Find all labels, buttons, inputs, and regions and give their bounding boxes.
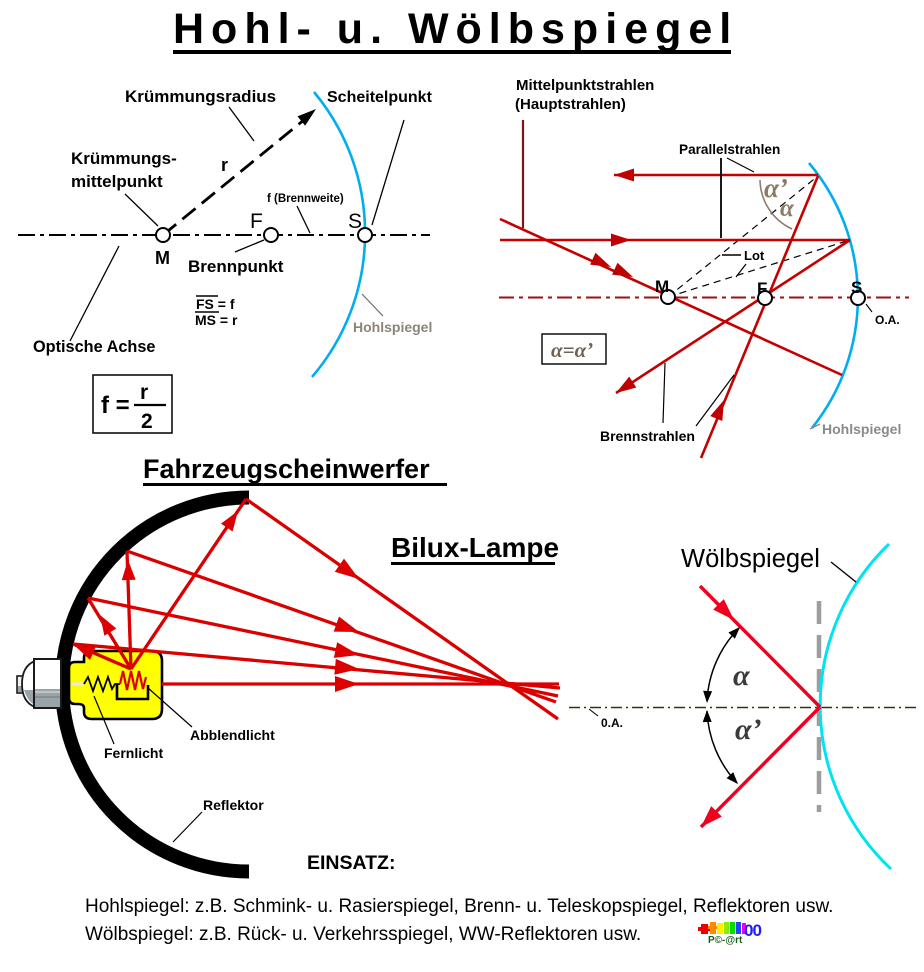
svg-text:M: M xyxy=(655,277,669,296)
svg-text:α=α’: α=α’ xyxy=(551,338,593,362)
svg-text:Wölbspiegel: Wölbspiegel xyxy=(681,545,820,573)
svg-text:Reflektor: Reflektor xyxy=(203,797,264,813)
svg-text:Brennpunkt: Brennpunkt xyxy=(188,257,284,276)
svg-text:S: S xyxy=(348,210,362,233)
svg-text:Abblendlicht: Abblendlicht xyxy=(190,727,275,743)
svg-text:Bilux-Lampe: Bilux-Lampe xyxy=(391,532,559,563)
svg-text:S: S xyxy=(851,278,862,297)
svg-text:Hohlspiegel: Hohlspiegel xyxy=(353,319,432,335)
svg-text:2: 2 xyxy=(141,410,153,433)
svg-text:Krümmungs-: Krümmungs- xyxy=(71,149,177,168)
svg-text:Lot: Lot xyxy=(744,248,765,263)
svg-text:(Hauptstrahlen): (Hauptstrahlen) xyxy=(515,96,626,113)
svg-text:Mittelpunktstrahlen: Mittelpunktstrahlen xyxy=(516,77,654,94)
svg-text:FS = f: FS = f xyxy=(196,296,235,312)
svg-text:Wölbspiegel: z.B. Rück- u. Ver: Wölbspiegel: z.B. Rück- u. Verkehrsspieg… xyxy=(85,924,641,945)
svg-text:Fahrzeugscheinwerfer: Fahrzeugscheinwerfer xyxy=(143,454,430,484)
svg-text:Parallelstrahlen: Parallelstrahlen xyxy=(679,142,780,157)
svg-text:EINSATZ:: EINSATZ: xyxy=(307,852,395,874)
svg-text:mittelpunkt: mittelpunkt xyxy=(71,172,163,191)
svg-text:Krümmungsradius: Krümmungsradius xyxy=(125,87,276,106)
svg-text:F: F xyxy=(250,210,263,233)
svg-text:f =: f = xyxy=(101,392,130,419)
svg-text:r: r xyxy=(221,155,228,175)
svg-text:α: α xyxy=(733,659,750,692)
svg-text:r: r xyxy=(140,381,148,404)
svg-text:α’: α’ xyxy=(735,713,762,746)
svg-text:Hohlspiegel: z.B. Schmink- u.: Hohlspiegel: z.B. Schmink- u. Rasierspie… xyxy=(85,896,833,917)
svg-text:O.A.: O.A. xyxy=(875,313,900,327)
svg-text:Brennstrahlen: Brennstrahlen xyxy=(600,428,695,444)
svg-text:0.A.: 0.A. xyxy=(601,716,623,730)
svg-text:MS = r: MS = r xyxy=(195,312,238,328)
svg-text:Fernlicht: Fernlicht xyxy=(104,745,163,761)
svg-text:00: 00 xyxy=(744,921,761,940)
svg-text:α: α xyxy=(780,195,795,222)
svg-text:M: M xyxy=(155,248,170,268)
svg-text:P©-@rt: P©-@rt xyxy=(708,935,743,946)
svg-text:Scheitelpunkt: Scheitelpunkt xyxy=(327,89,433,106)
svg-text:Hohl- u. Wölbspiegel: Hohl- u. Wölbspiegel xyxy=(173,5,738,53)
svg-text:f (Brennweite): f (Brennweite) xyxy=(267,193,344,205)
svg-text:F: F xyxy=(757,279,767,298)
svg-text:Optische Achse: Optische Achse xyxy=(33,338,155,356)
svg-text:Hohlspiegel: Hohlspiegel xyxy=(822,421,901,437)
